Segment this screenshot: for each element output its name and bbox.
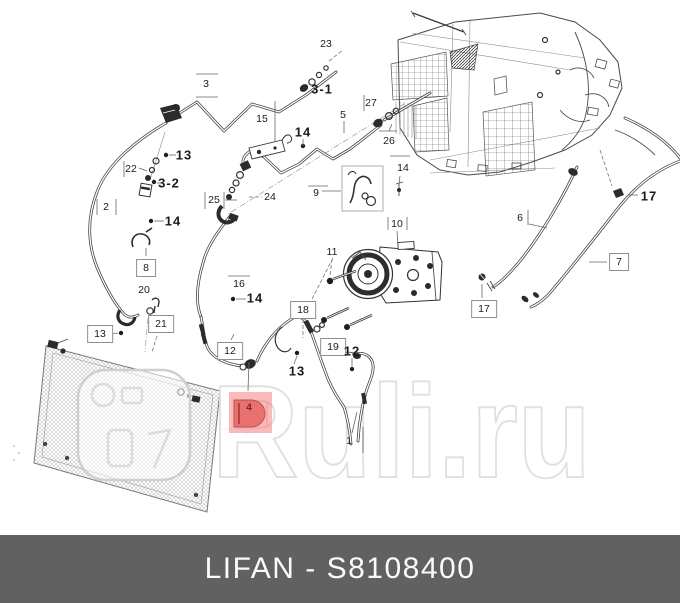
part-label-26: 26: [383, 135, 395, 147]
part-label-3-2: 3-2: [158, 176, 180, 191]
part-label-1: 1: [346, 435, 352, 447]
part-label-14: 14: [165, 214, 181, 229]
part-label-10: 10: [391, 218, 403, 230]
part-label-13: 13: [176, 148, 192, 163]
part-label-14: 14: [295, 125, 311, 140]
part-label-8: 8: [136, 259, 156, 277]
part-label-19: 19: [320, 338, 346, 356]
part-label-15: 15: [256, 113, 268, 125]
part-label-14: 14: [397, 162, 409, 174]
part-label-3-1: 3-1: [311, 82, 333, 97]
part-label-4: 4: [246, 403, 252, 414]
part-label-7: 7: [609, 253, 629, 271]
footer-part-title: LIFAN - S8108400: [205, 552, 476, 586]
part-label-13: 13: [289, 364, 305, 379]
part-label-11: 11: [327, 246, 338, 258]
part-label-17: 17: [471, 300, 497, 318]
part-label-22: 22: [125, 163, 137, 175]
part-label-5: 5: [340, 109, 346, 121]
part-label-21: 21: [148, 315, 174, 333]
part-label-9: 9: [313, 187, 319, 199]
part-label-20: 20: [138, 284, 150, 296]
part-number-labels: 2333-12751514261314223-29172425261410117…: [0, 0, 680, 603]
part-label-18: 18: [290, 301, 316, 319]
footer-bar: LIFAN - S8108400: [0, 535, 680, 603]
part-label-24: 24: [264, 191, 276, 203]
part-label-23: 23: [320, 38, 332, 50]
part-label-2: 2: [103, 201, 109, 213]
part-label-16: 16: [233, 278, 245, 290]
parts-diagram-page: Ruli.ru: [0, 0, 680, 603]
part-label-12: 12: [344, 344, 360, 359]
part-label-12: 12: [217, 342, 243, 360]
part-label-17: 17: [641, 189, 657, 204]
part-label-27: 27: [365, 97, 377, 109]
part-label-14: 14: [247, 291, 263, 306]
part-label-25: 25: [208, 194, 220, 206]
part-label-6: 6: [517, 212, 523, 224]
part-label-3: 3: [203, 78, 209, 90]
part-label-13: 13: [87, 325, 113, 343]
